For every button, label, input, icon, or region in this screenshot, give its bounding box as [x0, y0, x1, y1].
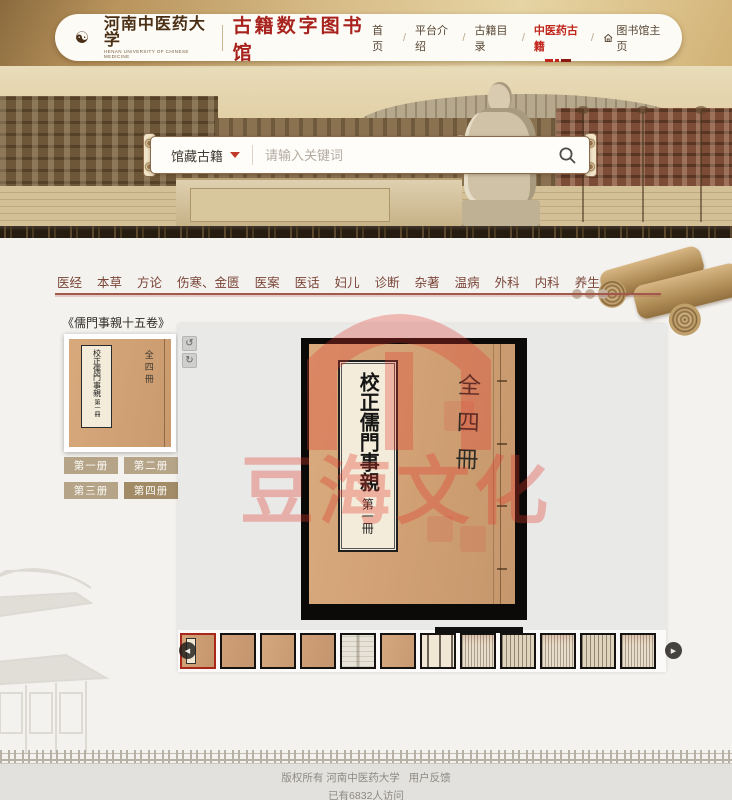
volume-3-button[interactable]: 第三册	[64, 482, 118, 499]
magnifier-icon	[558, 146, 577, 165]
visitor-count: 已有6832人访问	[0, 788, 732, 800]
footer: 版权所有 河南中医药大学 用户反馈 已有6832人访问	[0, 763, 732, 800]
thumbnails-prev-button[interactable]: ◀	[179, 642, 196, 659]
viewer-panel: ↺ ↻ 校正儒門事親 第一	[178, 324, 666, 672]
page-thumbnail-7[interactable]	[420, 633, 456, 669]
cover-note-text: 全四冊	[446, 372, 484, 484]
nav-separator: /	[591, 32, 594, 44]
thumbnail-scrollbar[interactable]	[435, 627, 523, 633]
tab-yihua[interactable]: 医话	[295, 272, 320, 291]
page: ☯ 河南中医药大学 HENAN UNIVERSITY OF CHINESE ME…	[0, 0, 732, 800]
search-bar: 馆藏古籍	[150, 136, 590, 174]
nav-item-platform-intro[interactable]: 平台介绍	[415, 22, 453, 54]
book-page-image[interactable]: 校正儒門事親 第一冊 全四冊	[301, 338, 527, 620]
viewer-stage: ↺ ↻ 校正儒門事親 第一	[178, 324, 666, 630]
feedback-link[interactable]: 用户反馈	[409, 772, 451, 784]
page-thumbnail-6[interactable]	[380, 633, 416, 669]
tab-yijing[interactable]: 医经	[57, 272, 82, 291]
search-input[interactable]	[253, 148, 545, 163]
nav-item-library-homepage[interactable]: 图书馆主页	[603, 22, 664, 54]
tab-wenbing[interactable]: 温病	[455, 272, 480, 291]
volume-2-button[interactable]: 第二册	[124, 457, 178, 474]
page-thumbnail-10[interactable]	[540, 633, 576, 669]
nav-item-catalog[interactable]: 古籍目录	[474, 22, 512, 54]
header-banner: ☯ 河南中医药大学 HENAN UNIVERSITY OF CHINESE ME…	[0, 0, 732, 238]
university-name-en: HENAN UNIVERSITY OF CHINESE MEDICINE	[104, 50, 212, 59]
tab-underline	[55, 293, 661, 295]
page-thumbnail-5[interactable]	[340, 633, 376, 669]
volume-1-button[interactable]: 第一册	[64, 457, 118, 474]
search-button[interactable]	[545, 137, 589, 173]
page-thumbnail-11[interactable]	[580, 633, 616, 669]
tab-zazhu[interactable]: 杂著	[415, 272, 440, 291]
category-tabs: 医经 本草 方论 伤寒、金匮 医案 医话 妇儿 诊断 杂著 温病 外科 内科 养…	[57, 272, 600, 291]
book-title: 《儒門事親十五卷》	[62, 314, 170, 331]
page-thumbnail-3[interactable]	[260, 633, 296, 669]
content-area: 医经 本草 方论 伤寒、金匮 医案 医话 妇儿 诊断 杂著 温病 外科 内科 养…	[0, 238, 732, 763]
cover-title-label: 校正儒門事親 第一冊	[338, 360, 398, 552]
lattice-border-top	[0, 226, 732, 238]
rotate-cw-button[interactable]: ↻	[182, 353, 197, 368]
page-thumbnail-2[interactable]	[220, 633, 256, 669]
main-navigation: 首 页 / 平台介绍 / 古籍目录 / 中医药古籍 / 图书馆主页	[372, 22, 664, 54]
volume-buttons: 第一册 第二册 第三册 第四册	[64, 457, 178, 499]
search-category-dropdown[interactable]: 馆藏古籍	[151, 146, 252, 165]
university-logo[interactable]: 河南中医药大学 HENAN UNIVERSITY OF CHINESE MEDI…	[104, 16, 212, 59]
scrolls-decoration	[600, 240, 732, 326]
lamp-post-decoration	[642, 112, 644, 222]
university-name: 河南中医药大学	[104, 16, 212, 48]
house-icon	[603, 32, 613, 44]
volume-4-button[interactable]: 第四册	[124, 482, 178, 499]
lattice-border-bottom	[0, 750, 732, 763]
copyright-text: 版权所有 河南中医药大学	[281, 772, 399, 784]
tab-waike[interactable]: 外科	[495, 272, 520, 291]
nav-item-home[interactable]: 首 页	[372, 22, 394, 54]
search-category-value: 馆藏古籍	[171, 146, 223, 165]
book-cover-thumbnail-card[interactable]: 校正儒門事親 第一冊 全四冊	[64, 334, 176, 452]
tab-yangsheng[interactable]: 养生	[575, 272, 600, 291]
logo-divider	[222, 25, 223, 51]
top-navbar: ☯ 河南中医药大学 HENAN UNIVERSITY OF CHINESE ME…	[55, 14, 682, 61]
site-title: 古籍数字图书馆	[233, 11, 373, 65]
tab-bencao[interactable]: 本草	[97, 272, 122, 291]
page-thumbnail-4[interactable]	[300, 633, 336, 669]
university-seal-icon: ☯	[67, 21, 97, 54]
cover-note-mini: 全四冊	[142, 350, 155, 386]
tab-fuer[interactable]: 妇儿	[335, 272, 360, 291]
nav-separator: /	[522, 32, 525, 44]
tab-zhenduan[interactable]: 诊断	[375, 272, 400, 291]
tab-yian[interactable]: 医案	[255, 272, 280, 291]
book-cover-mini: 校正儒門事親 第一冊 全四冊	[69, 339, 171, 447]
rotate-ccw-button[interactable]: ↺	[182, 336, 197, 351]
page-thumbnail-12[interactable]	[620, 633, 656, 669]
chevron-down-icon	[230, 152, 240, 158]
page-thumbnail-8[interactable]	[460, 633, 496, 669]
wall-decoration	[176, 178, 462, 228]
tab-shanghan-jingui[interactable]: 伤寒、金匮	[177, 272, 240, 291]
lamp-post-decoration	[700, 112, 702, 222]
nav-item-label: 图书馆主页	[616, 22, 664, 54]
cover-label-mini: 校正儒門事親 第一冊	[81, 345, 112, 427]
thumbnails-next-button[interactable]: ▶	[665, 642, 682, 659]
nav-item-tcm-ancient-books[interactable]: 中医药古籍	[534, 22, 582, 54]
thumbnail-strip: ◀ ▶	[180, 633, 664, 669]
page-thumbnail-9[interactable]	[500, 633, 536, 669]
nav-separator: /	[403, 32, 406, 44]
tab-fanglun[interactable]: 方论	[137, 272, 162, 291]
book-cover-image: 校正儒門事親 第一冊 全四冊	[309, 344, 515, 604]
nav-separator: /	[462, 32, 465, 44]
pagoda-sketch-decoration	[0, 543, 181, 758]
tab-neike[interactable]: 内科	[535, 272, 560, 291]
